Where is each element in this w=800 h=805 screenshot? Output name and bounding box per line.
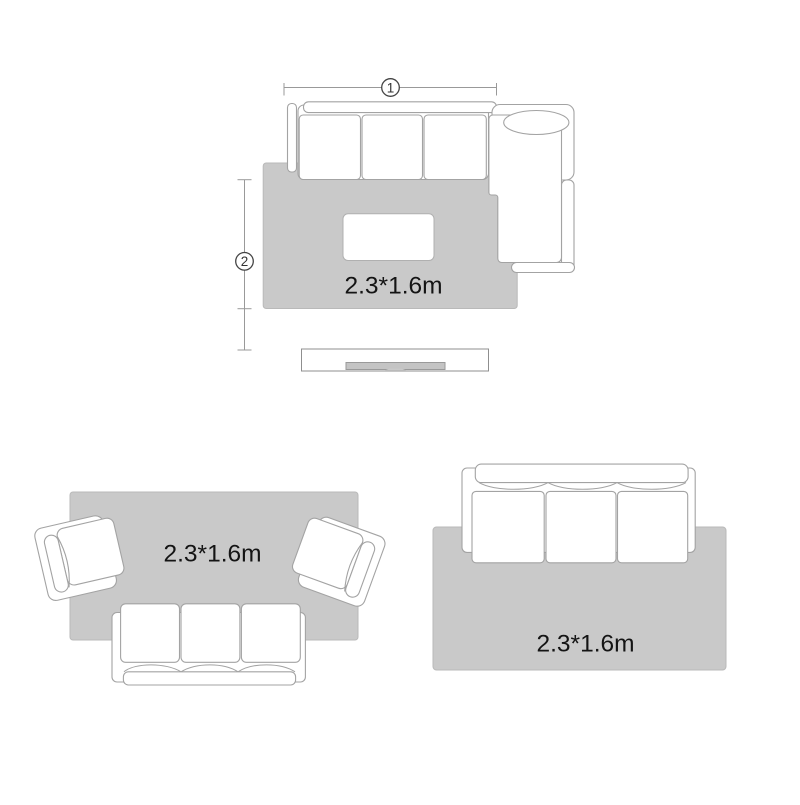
svg-text:2: 2 — [241, 254, 249, 269]
svg-text:2.3*1.6m: 2.3*1.6m — [537, 631, 635, 658]
svg-text:2.3*1.6m: 2.3*1.6m — [164, 541, 262, 568]
svg-text:2.3*1.6m: 2.3*1.6m — [345, 273, 443, 300]
svg-text:1: 1 — [387, 80, 395, 95]
